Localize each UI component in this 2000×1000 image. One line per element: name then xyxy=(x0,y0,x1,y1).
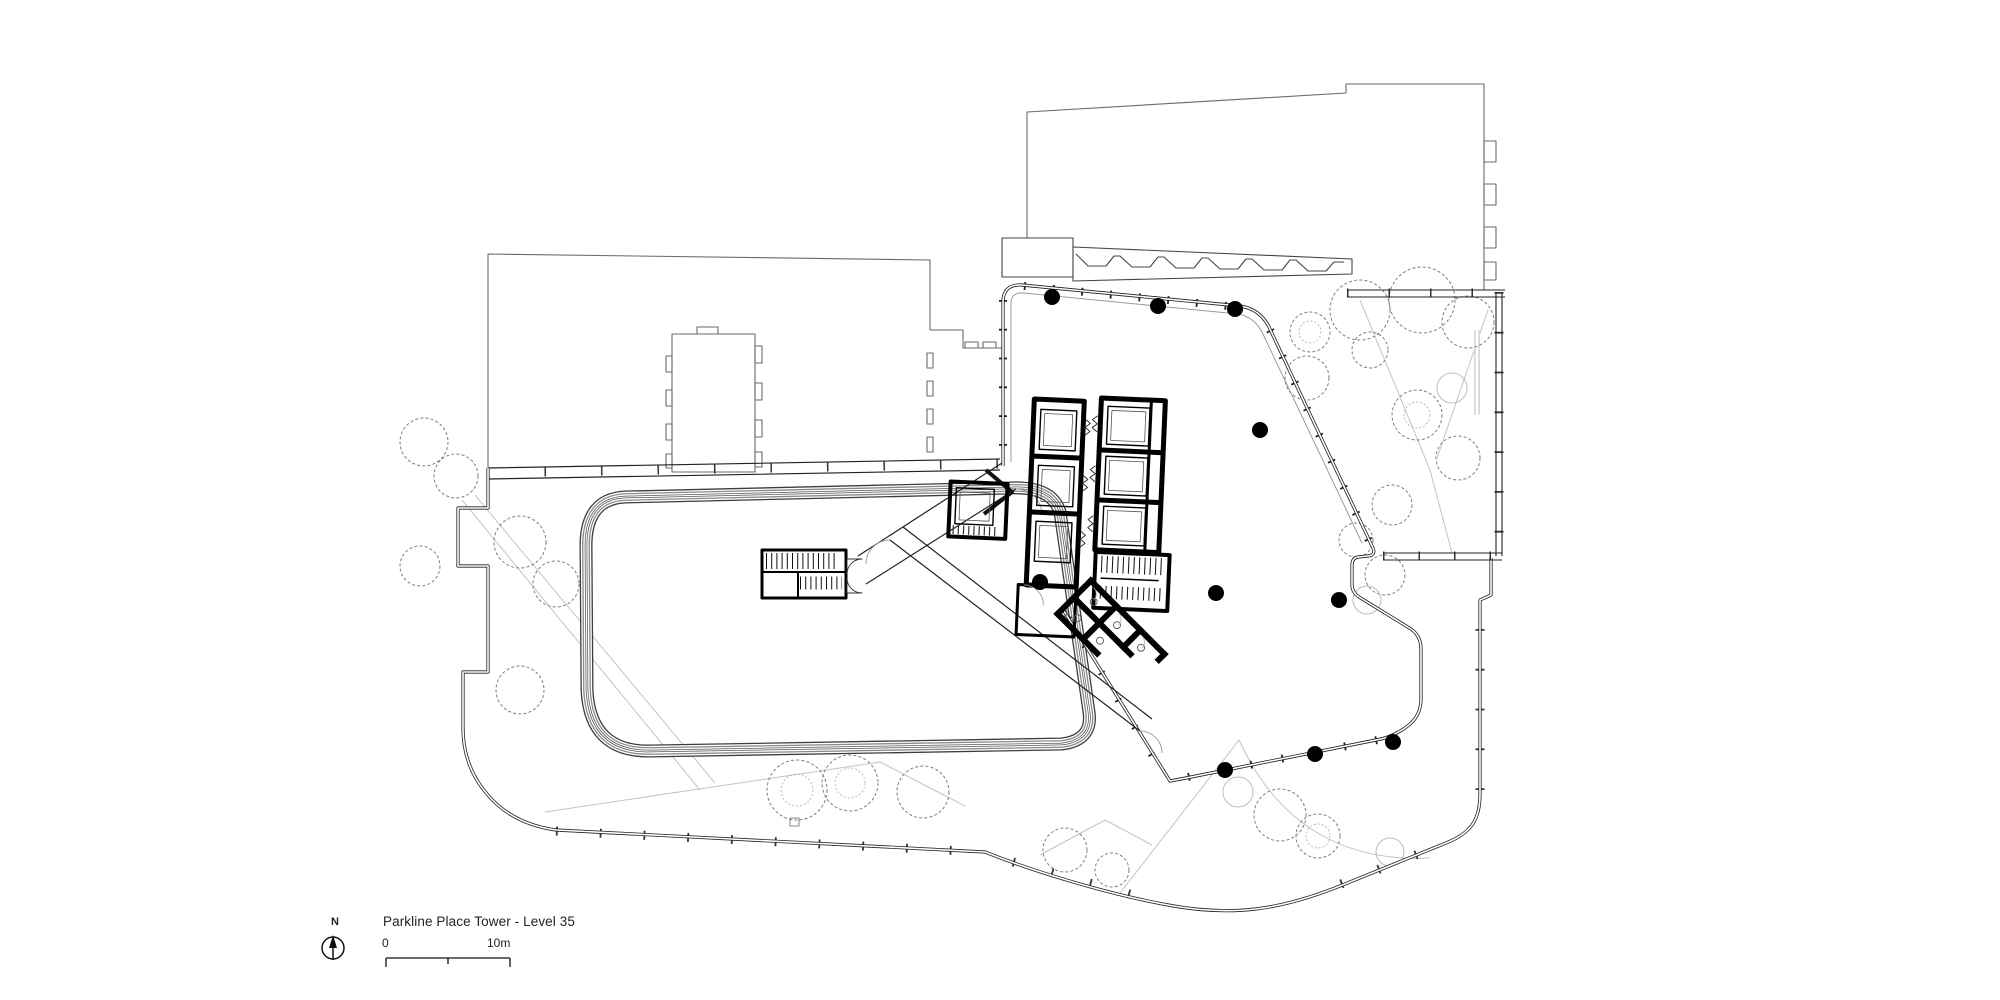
scale-bar xyxy=(386,958,510,967)
site-boundary xyxy=(458,468,1491,911)
podium-top-band xyxy=(488,459,1000,479)
neighbor-building-left xyxy=(488,254,1002,477)
north-arrow xyxy=(322,935,344,960)
north-label: N xyxy=(331,916,339,928)
podium-loop xyxy=(586,488,1089,751)
floor-plan-drawing xyxy=(0,0,2000,1000)
scale-zero-label: 0 xyxy=(382,936,389,950)
floor-plan-sheet: Parkline Place Tower - Level 35 N 0 10m xyxy=(0,0,2000,1000)
scale-max-label: 10m xyxy=(487,936,510,950)
podium-stair-pod xyxy=(762,550,862,598)
lift-bank-right xyxy=(1087,398,1166,553)
canopy-zigzag-band xyxy=(1002,238,1352,281)
drawing-title: Parkline Place Tower - Level 35 xyxy=(383,914,575,929)
core-stair xyxy=(1093,552,1169,611)
trees xyxy=(400,267,1494,887)
